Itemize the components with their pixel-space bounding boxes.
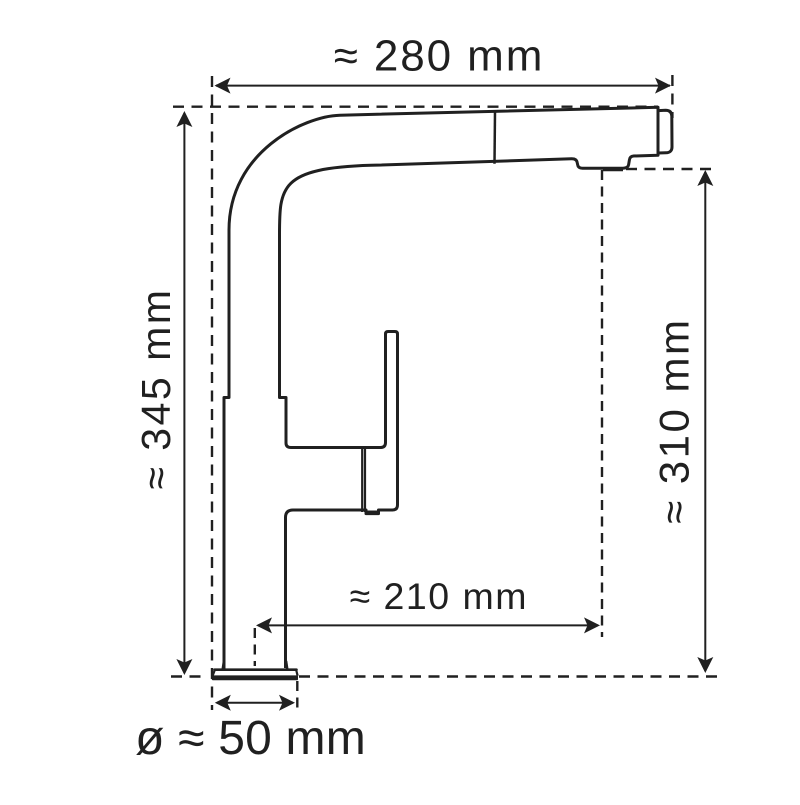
svg-text:≈ 310 mm: ≈ 310 mm bbox=[651, 317, 698, 523]
svg-text:ø ≈ 50 mm: ø ≈ 50 mm bbox=[135, 712, 366, 765]
svg-text:≈ 345 mm: ≈ 345 mm bbox=[133, 288, 179, 490]
svg-text:≈ 280 mm: ≈ 280 mm bbox=[334, 32, 545, 81]
svg-text:≈ 210 mm: ≈ 210 mm bbox=[350, 575, 528, 617]
